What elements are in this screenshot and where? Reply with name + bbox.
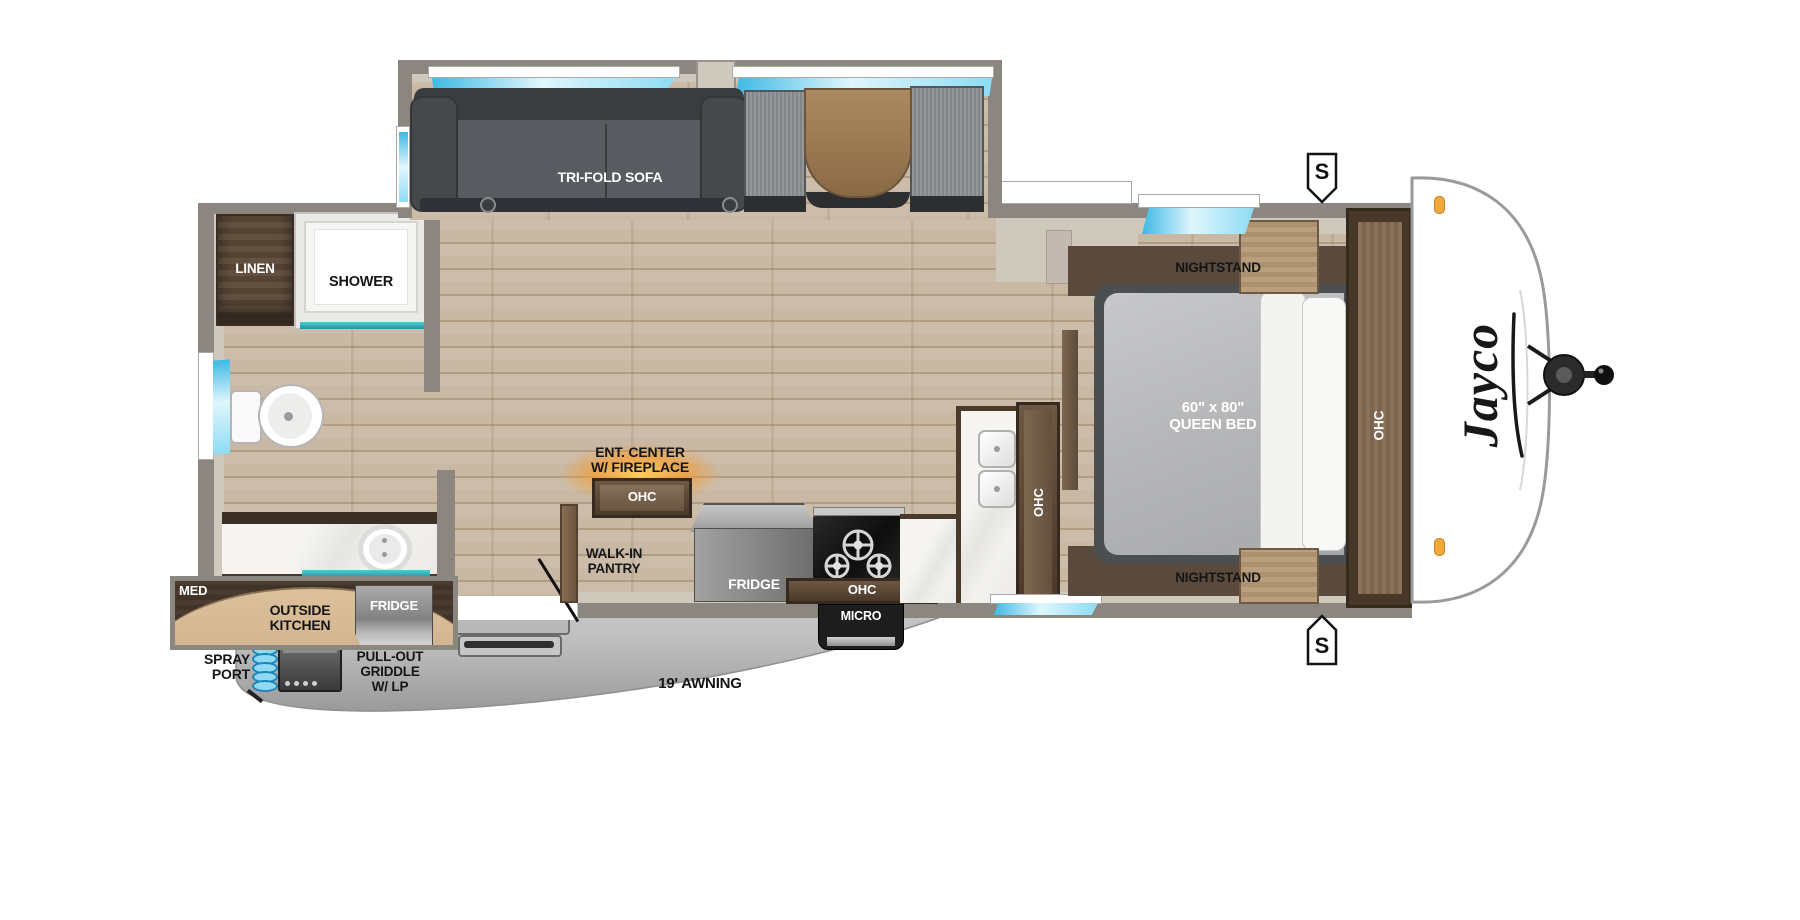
vanity-sink-icon — [358, 524, 412, 574]
bedroom-partition-wall — [1062, 330, 1078, 490]
griddle-line2: GRIDDLE — [360, 664, 419, 679]
shower — [294, 212, 428, 330]
sofa-seat — [426, 120, 732, 204]
dinette-bench-right-base — [910, 196, 984, 212]
bedroom-window — [1142, 208, 1254, 234]
spray-port-label: SPRAY PORT — [172, 652, 250, 683]
pantry-label: WALK-IN PANTRY — [562, 547, 666, 577]
rear-window-frame — [198, 352, 214, 460]
griddle-label: PULL-OUT GRIDDLE W/ LP — [346, 650, 434, 695]
kitchen-window — [994, 603, 1098, 615]
spray-port-line1: SPRAY — [204, 651, 250, 667]
vanity-backsplash — [222, 512, 438, 524]
sofa-cupholder-left — [480, 197, 496, 213]
bed-size-label: 60" x 80" — [1182, 399, 1244, 416]
bed-label: 60" x 80" QUEEN BED — [1120, 400, 1306, 433]
bedroom-ohc-label: OHC — [1372, 410, 1387, 440]
cap-marker-light-top — [1434, 196, 1445, 214]
spray-port-hose-icon — [252, 644, 280, 704]
cap-marker-light-bottom — [1434, 538, 1445, 556]
ent-center-label: ENT. CENTER W/ FIREPLACE — [566, 445, 714, 476]
med-label: MED — [179, 584, 223, 598]
sofa-cupholder-right — [722, 197, 738, 213]
griddle-icon — [278, 644, 342, 692]
pantry-line2: PANTRY — [588, 561, 641, 576]
sofa-armrest-right — [700, 96, 748, 212]
nightstand-top-label: NIGHTSTAND — [1128, 261, 1308, 276]
outside-fridge-label: FRIDGE — [355, 599, 433, 613]
stove-top-trim — [813, 507, 905, 516]
brand-logo-text: Jayco — [1451, 323, 1509, 447]
bed-type-label: QUEEN BED — [1169, 416, 1256, 433]
dinette-bench-left-base — [744, 196, 806, 212]
slideout-window2-frame — [732, 66, 994, 78]
bath-wall-upper — [424, 208, 440, 392]
shower-label: SHOWER — [294, 275, 428, 291]
kitchen-ohc-side-labelbox: OHC — [1016, 480, 1060, 524]
kitchen-ohc-side-label: OHC — [1030, 488, 1045, 517]
outside-kitchen-line1: OUTSIDE — [270, 602, 331, 618]
bed-pillow-2 — [1302, 297, 1346, 551]
dinette-bench-right — [910, 86, 984, 200]
stove-burners-icon — [813, 516, 905, 578]
outside-fridge — [355, 585, 433, 647]
floorplan-canvas: 19' AWNING SPRAY PORT PULL-OUT GRIDDLE W… — [0, 0, 1800, 920]
spray-port-line2: PORT — [212, 666, 250, 682]
ent-center-line1: ENT. CENTER — [595, 444, 685, 460]
sofa-label: TRI-FOLD SOFA — [540, 170, 680, 185]
midship-window — [994, 181, 1132, 204]
outside-kitchen-label: OUTSIDE KITCHEN — [233, 603, 367, 634]
safety-badge-top-text: S — [1315, 159, 1330, 184]
awning-label: 19' AWNING — [620, 676, 780, 693]
dinette-bench-left — [744, 90, 806, 200]
slideout-side-window — [399, 132, 408, 202]
sofa-seam — [605, 124, 607, 200]
entry-step-rail — [464, 641, 554, 648]
griddle-line3: W/ LP — [372, 679, 409, 694]
ent-center-line2: W/ FIREPLACE — [591, 459, 689, 475]
shower-glass — [300, 322, 424, 329]
micro-label: MICRO — [818, 610, 904, 624]
toilet-icon — [230, 384, 326, 450]
outside-kitchen-line2: KITCHEN — [270, 617, 331, 633]
bottom-wall — [578, 603, 1412, 618]
dinette-table — [804, 88, 912, 198]
hitch-icon — [1512, 330, 1642, 420]
outside-kitchen-compartment: MED OUTSIDE KITCHEN FRIDGE — [170, 576, 458, 650]
kitchen-sink-icon — [978, 430, 1016, 508]
slideout-window1-frame — [428, 66, 680, 78]
sofa-base — [420, 198, 738, 212]
sofa-armrest-left — [410, 96, 458, 212]
pantry-line1: WALK-IN — [586, 546, 642, 561]
safety-badge-bottom: S — [1304, 612, 1340, 668]
griddle-line1: PULL-OUT — [357, 649, 424, 664]
entry-door-opening — [455, 596, 577, 620]
bedroom-window-frame — [1138, 194, 1260, 208]
safety-badge-top: S — [1304, 150, 1340, 206]
rear-window — [213, 359, 230, 454]
nightstand-top — [1239, 220, 1319, 294]
safety-badge-bottom-text: S — [1315, 633, 1330, 658]
nightstand-bottom-label: NIGHTSTAND — [1128, 571, 1308, 586]
linen-label: LINEN — [216, 262, 294, 277]
ent-center-ohc-label: OHC — [592, 490, 692, 504]
